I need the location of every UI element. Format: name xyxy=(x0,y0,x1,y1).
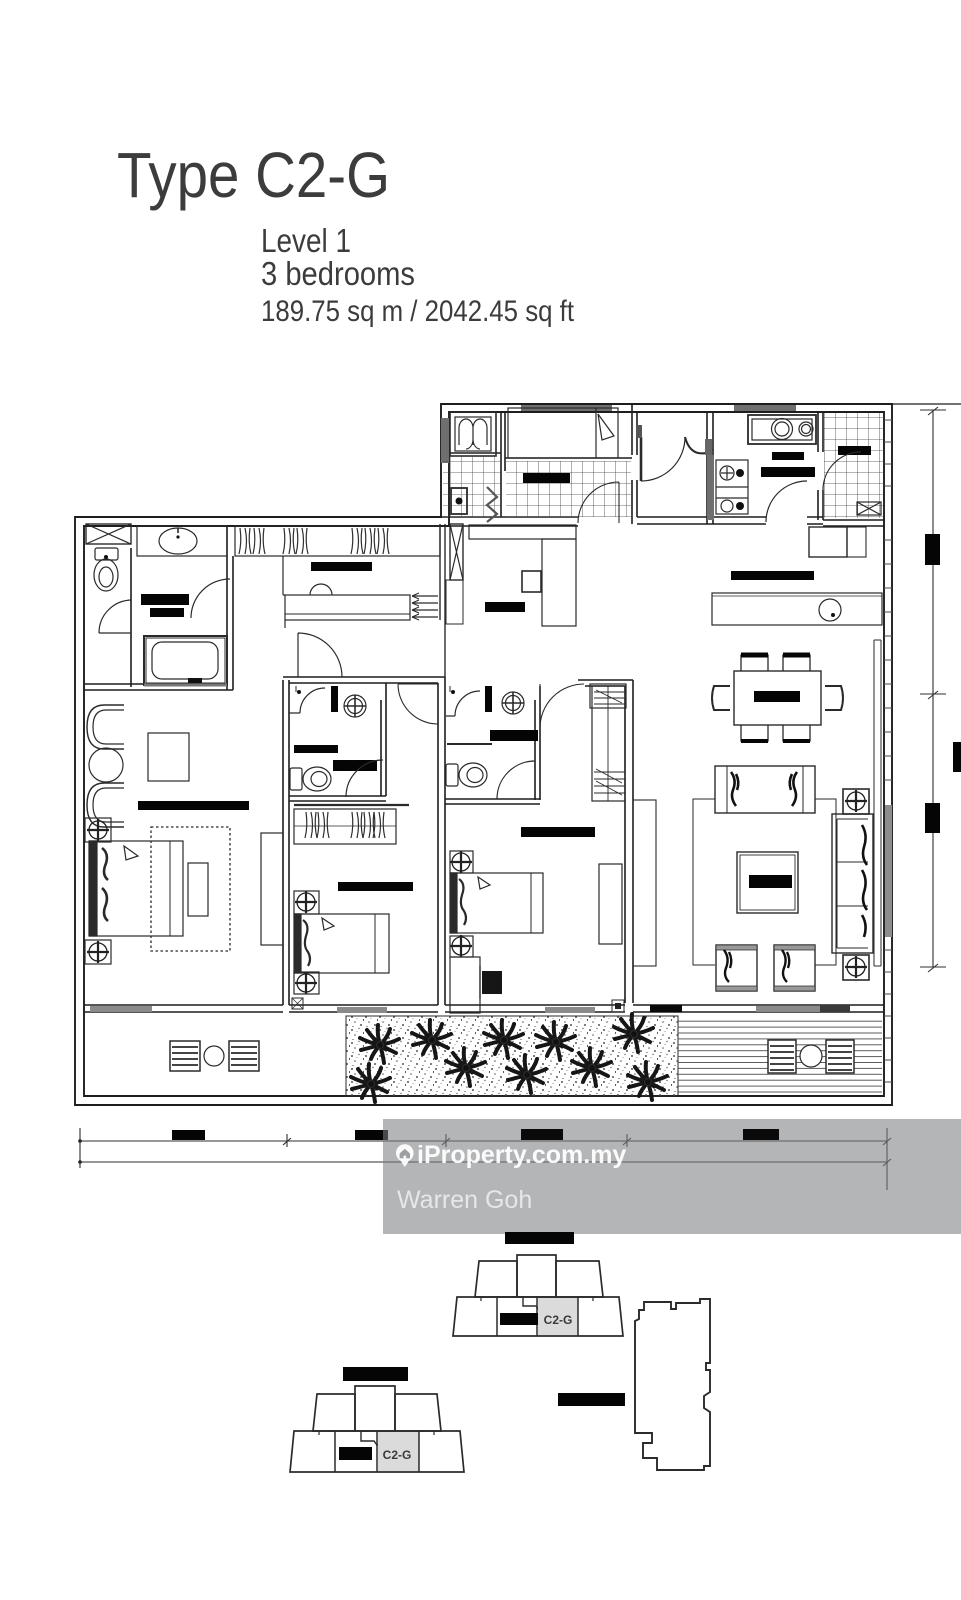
svg-text:C2-G: C2-G xyxy=(544,1313,573,1327)
svg-text:iProperty.com.my: iProperty.com.my xyxy=(417,1141,626,1169)
svg-text:C2-G: C2-G xyxy=(383,1448,412,1462)
svg-text:3 bedrooms: 3 bedrooms xyxy=(261,255,415,292)
svg-text:Level 1: Level 1 xyxy=(261,222,351,259)
svg-text:Type C2-G: Type C2-G xyxy=(117,139,390,211)
svg-text:Warren Goh: Warren Goh xyxy=(397,1186,532,1214)
svg-text:189.75 sq m / 2042.45 sq ft: 189.75 sq m / 2042.45 sq ft xyxy=(261,295,575,328)
